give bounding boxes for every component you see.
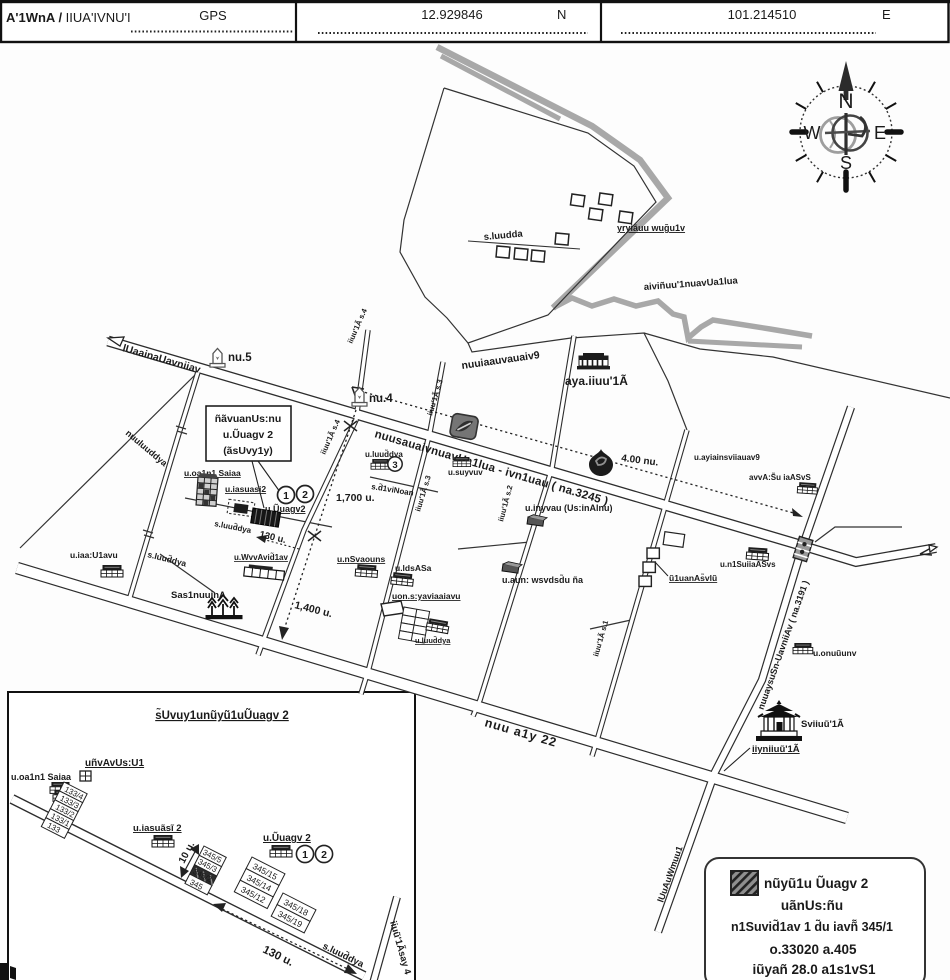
svg-text:iiyniiuũ'1Ã: iiyniiuũ'1Ã <box>752 744 800 755</box>
svg-text:u.luud̃dya: u.luud̃dya <box>415 636 451 645</box>
svg-text:S: S <box>840 153 852 173</box>
svg-text:E: E <box>882 7 891 22</box>
svg-text:nũyũ1u Ũuagv 2: nũyũ1u Ũuagv 2 <box>764 876 868 891</box>
svg-text:u.WvvAvid̃1av: u.WvvAvid̃1av <box>234 553 288 562</box>
svg-text:o.33020 a.405: o.33020 a.405 <box>769 942 857 957</box>
svg-text:u.nSvaouns: u.nSvaouns <box>337 554 385 564</box>
svg-text:N: N <box>838 90 853 113</box>
svg-text:u.ldsASa: u.ldsASa <box>395 563 432 573</box>
svg-text:2: 2 <box>302 489 308 501</box>
svg-text:u.iaa:U1avu: u.iaa:U1avu <box>70 550 118 560</box>
svg-text:12.929846: 12.929846 <box>421 7 482 22</box>
svg-text:N: N <box>557 7 566 22</box>
svg-text:3: 3 <box>392 460 397 471</box>
svg-text:u.oa1n1 Saiaa: u.oa1n1 Saiaa <box>11 772 72 782</box>
svg-text:2: 2 <box>321 849 327 861</box>
svg-text:u.inyvau (Us:inAlnu): u.inyvau (Us:inAlnu) <box>525 503 613 513</box>
svg-text:A'1WnA / IIUA'IVNU'I: A'1WnA / IIUA'IVNU'I <box>6 10 131 25</box>
svg-text:u.Ũuagv 2: u.Ũuagv 2 <box>223 428 273 441</box>
svg-text:u.ayiainsviiauav9: u.ayiainsviiauav9 <box>694 453 760 462</box>
svg-text:u.suyvuv: u.suyvuv <box>448 468 483 477</box>
svg-text:u.iasuasi2: u.iasuasi2 <box>225 484 266 494</box>
svg-text:n1Suvid̃1av 1 d̃u iavñ̃ 345/1: n1Suvid̃1av 1 d̃u iavñ̃ 345/1 <box>731 919 893 934</box>
svg-text:uñvAvUs:U1: uñvAvUs:U1 <box>85 758 145 769</box>
svg-text:nu.4: nu.4 <box>369 393 393 405</box>
svg-text:nu.5: nu.5 <box>228 352 252 364</box>
svg-text:W: W <box>804 123 821 143</box>
svg-text:Sviiuũ'1Ã: Sviiuũ'1Ã <box>801 719 844 730</box>
svg-text:s̃Uvuy1unũyũ1uŨuagv 2: s̃Uvuy1unũyũ1uŨuagv 2 <box>155 709 289 722</box>
svg-text:u.onuũunv: u.onuũunv <box>813 648 857 658</box>
svg-text:aya.iiuu'1Ã: aya.iiuu'1Ã <box>565 373 628 388</box>
svg-text:1: 1 <box>302 849 308 861</box>
svg-text:ñãvuanUs:nu: ñãvuanUs:nu <box>215 413 282 425</box>
svg-text:(ãsUvy1y): (ãsUvy1y) <box>223 445 273 457</box>
svg-text:avvA:S̃u iaASvS: avvA:S̃u iaASvS <box>749 473 811 482</box>
svg-text:uãnUs:ñu: uãnUs:ñu <box>781 898 843 913</box>
svg-text:uon.s:yaviaaiavu: uon.s:yaviaaiavu <box>392 591 461 601</box>
svg-text:1,700 u.: 1,700 u. <box>336 492 375 504</box>
svg-text:iũyañ 28.0 a1s1vS1: iũyañ 28.0 a1s1vS1 <box>752 962 876 977</box>
svg-text:yryiãuu wug̃u1v: yryiãuu wug̃u1v <box>617 223 685 233</box>
svg-text:u.n1SuiiaASvs: u.n1SuiiaASvs <box>720 560 776 569</box>
svg-text:E: E <box>874 123 886 143</box>
svg-text:u.Ũuagv 2: u.Ũuagv 2 <box>263 831 311 844</box>
svg-text:GPS: GPS <box>199 8 227 23</box>
svg-text:1: 1 <box>283 490 289 502</box>
svg-text:u.aun: wsvdsd̃u ña: u.aun: wsvdsd̃u ña <box>502 574 584 585</box>
svg-text:101.214510: 101.214510 <box>728 7 797 22</box>
svg-text:ũ1uanAs̃vlũ: ũ1uanAs̃vlũ <box>669 572 717 583</box>
svg-text:u.iasuãsĩ 2: u.iasuãsĩ 2 <box>133 823 182 834</box>
svg-text:Sas1nuuinA: Sas1nuuinA <box>171 590 226 601</box>
